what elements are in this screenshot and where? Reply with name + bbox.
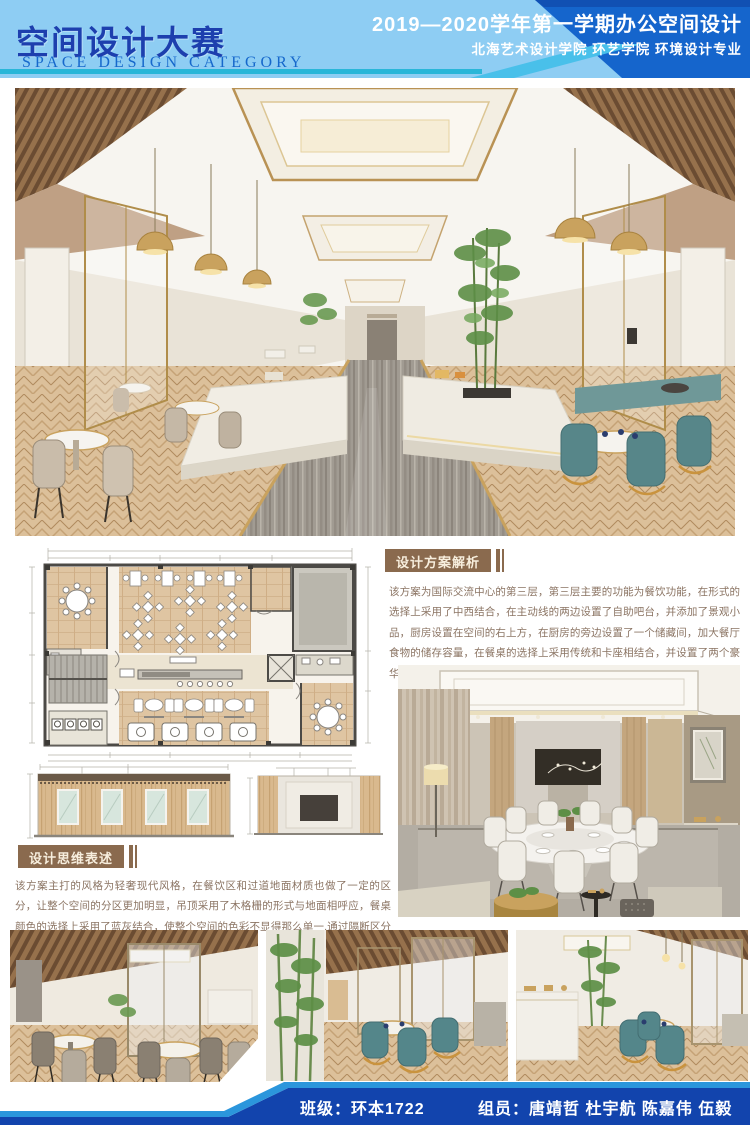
vip-room-illustration bbox=[398, 665, 740, 917]
stairs bbox=[49, 655, 107, 703]
analysis-label-bar2 bbox=[502, 549, 504, 572]
booth-area-illustration bbox=[266, 930, 508, 1081]
term-line: 2019—2020学年第一学期办公空间设计 bbox=[372, 8, 742, 37]
poster-page: 空间设计大赛 SPACE DESIGN CATEGORY 2019—2020学年… bbox=[0, 0, 750, 1125]
elevator bbox=[268, 655, 294, 681]
elevation-right bbox=[247, 768, 383, 834]
bottom-photo-1 bbox=[10, 930, 258, 1105]
floor-plan-panel bbox=[20, 543, 380, 765]
bottom-photo-3 bbox=[516, 930, 748, 1081]
floor-plan-drawing bbox=[20, 543, 380, 765]
team-label: 组员：唐靖哲 杜宇航 陈嘉伟 伍毅 bbox=[478, 1095, 732, 1119]
bamboo-plant bbox=[266, 930, 324, 1081]
tv-panel bbox=[535, 749, 601, 785]
analysis-label-bar bbox=[496, 549, 500, 572]
thinking-section-header: 设计思维表述 bbox=[18, 845, 137, 868]
dining-area-illustration bbox=[10, 930, 258, 1105]
school-line: 北海艺术设计学院 环艺学院 环境设计专业 bbox=[471, 38, 742, 58]
restaurant-hall-illustration bbox=[15, 88, 735, 536]
competition-subtitle: SPACE DESIGN CATEGORY bbox=[22, 54, 305, 72]
elevation-illustrations bbox=[18, 762, 383, 848]
thinking-label-bar bbox=[129, 845, 133, 868]
wc-stalls bbox=[49, 711, 107, 745]
thinking-label: 设计思维表述 bbox=[18, 845, 124, 868]
analysis-label: 设计方案解析 bbox=[385, 549, 491, 572]
buffet-counter-illustration bbox=[516, 930, 748, 1081]
vip-dining-render bbox=[398, 665, 740, 917]
thinking-label-bar2 bbox=[135, 845, 137, 868]
elevation-drawings bbox=[18, 762, 383, 848]
main-restaurant-render bbox=[15, 88, 735, 536]
header-banner: 空间设计大赛 SPACE DESIGN CATEGORY 2019—2020学年… bbox=[0, 0, 750, 78]
class-label: 班级：环本1722 bbox=[300, 1095, 425, 1119]
buffet-counter bbox=[516, 992, 578, 1060]
bottom-photo-2 bbox=[266, 930, 508, 1081]
elevation-left bbox=[27, 764, 234, 838]
analysis-section-header: 设计方案解析 bbox=[385, 549, 504, 572]
